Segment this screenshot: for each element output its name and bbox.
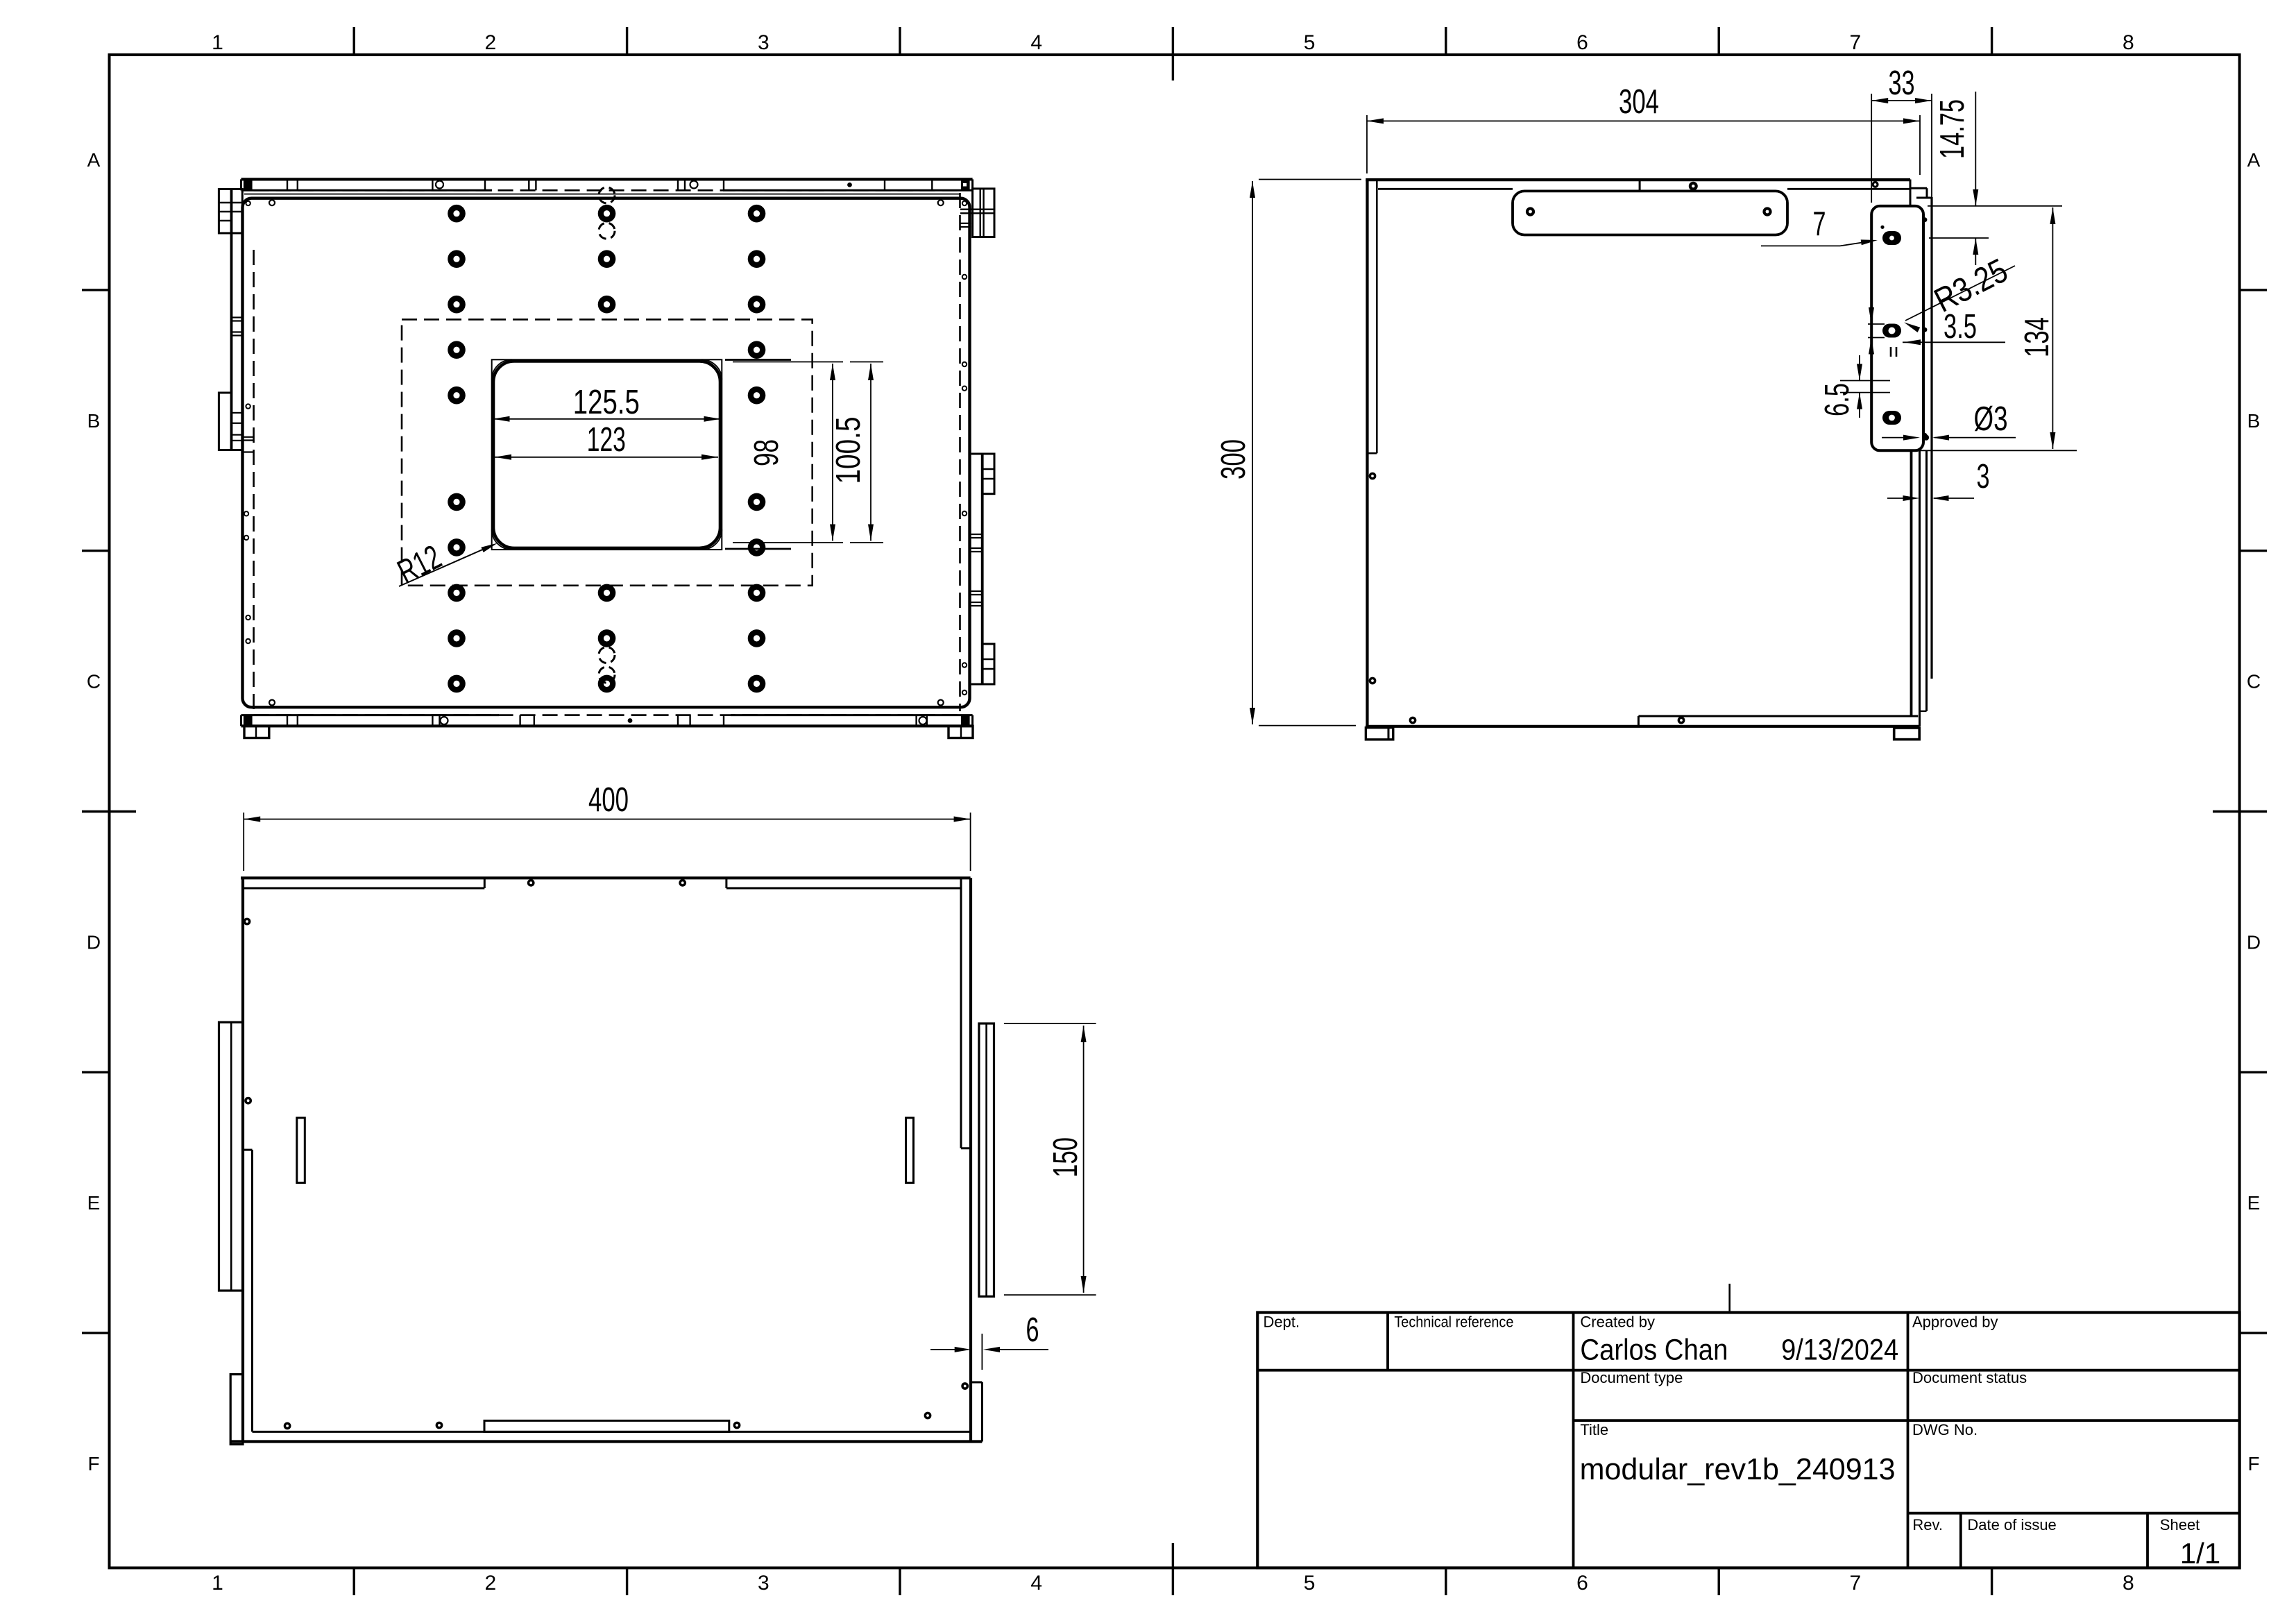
- svg-text:3: 3: [758, 31, 769, 54]
- svg-text:Dept.: Dept.: [1264, 1314, 1300, 1331]
- svg-text:98: 98: [748, 439, 785, 466]
- svg-text:2: 2: [485, 31, 497, 54]
- svg-text:4: 4: [1030, 31, 1042, 54]
- svg-text:Sheet: Sheet: [2160, 1516, 2200, 1533]
- svg-text:4: 4: [1030, 1572, 1042, 1595]
- svg-text:9/13/2024: 9/13/2024: [1781, 1334, 1898, 1367]
- svg-text:6.5: 6.5: [1819, 383, 1856, 416]
- svg-text:Date of issue: Date of issue: [1967, 1516, 2056, 1533]
- svg-text:7: 7: [1850, 31, 1862, 54]
- svg-text:7: 7: [1813, 205, 1826, 243]
- svg-text:F: F: [87, 1453, 99, 1475]
- svg-text:100.5: 100.5: [830, 417, 867, 484]
- svg-text:6: 6: [1026, 1311, 1039, 1349]
- svg-text:E: E: [87, 1192, 101, 1214]
- svg-text:3: 3: [758, 1572, 769, 1595]
- svg-text:125.5: 125.5: [573, 384, 640, 421]
- svg-text:1/1: 1/1: [2180, 1537, 2220, 1570]
- svg-text:3.5: 3.5: [1944, 308, 1977, 346]
- svg-text:D: D: [87, 931, 101, 953]
- svg-text:6: 6: [1576, 1572, 1588, 1595]
- svg-text:A: A: [87, 149, 101, 171]
- svg-text:D: D: [2247, 931, 2261, 953]
- svg-text:6: 6: [1576, 31, 1588, 54]
- svg-text:33: 33: [1889, 65, 1915, 102]
- svg-text:Document type: Document type: [1580, 1369, 1683, 1386]
- svg-text:Technical reference: Technical reference: [1394, 1314, 1513, 1331]
- svg-text:2: 2: [485, 1572, 497, 1595]
- svg-text:modular_rev1b_240913: modular_rev1b_240913: [1580, 1452, 1896, 1486]
- svg-text:1: 1: [212, 31, 223, 54]
- svg-text:123: 123: [587, 421, 626, 459]
- svg-text:Document status: Document status: [1912, 1369, 2027, 1386]
- svg-text:A: A: [2247, 149, 2261, 171]
- svg-text:5: 5: [1304, 31, 1316, 54]
- svg-text:Approved by: Approved by: [1912, 1314, 1998, 1331]
- svg-text:8: 8: [2123, 31, 2134, 54]
- svg-text:Created by: Created by: [1580, 1314, 1655, 1331]
- svg-text:14.75: 14.75: [1934, 99, 1971, 159]
- svg-text:Rev.: Rev.: [1912, 1516, 1943, 1533]
- svg-text:5: 5: [1304, 1572, 1316, 1595]
- svg-text:400: 400: [588, 781, 629, 819]
- svg-text:150: 150: [1047, 1137, 1085, 1178]
- svg-text:8: 8: [2123, 1572, 2134, 1595]
- svg-text:DWG No.: DWG No.: [1912, 1421, 1978, 1438]
- svg-text:F: F: [2247, 1453, 2259, 1475]
- svg-text:7: 7: [1850, 1572, 1862, 1595]
- svg-text:Ø3: Ø3: [1974, 400, 2008, 438]
- svg-text:3: 3: [1977, 458, 1990, 495]
- svg-text:Carlos Chan: Carlos Chan: [1580, 1334, 1728, 1367]
- svg-text:C: C: [87, 671, 101, 692]
- svg-text:Title: Title: [1580, 1421, 1608, 1438]
- svg-text:134: 134: [2018, 317, 2056, 357]
- svg-text:C: C: [2247, 671, 2261, 692]
- svg-text:E: E: [2247, 1192, 2261, 1214]
- svg-text:1: 1: [212, 1572, 223, 1595]
- svg-text:300: 300: [1215, 439, 1252, 479]
- svg-text:B: B: [87, 410, 101, 432]
- svg-text:304: 304: [1619, 83, 1659, 121]
- svg-text:B: B: [2247, 410, 2261, 432]
